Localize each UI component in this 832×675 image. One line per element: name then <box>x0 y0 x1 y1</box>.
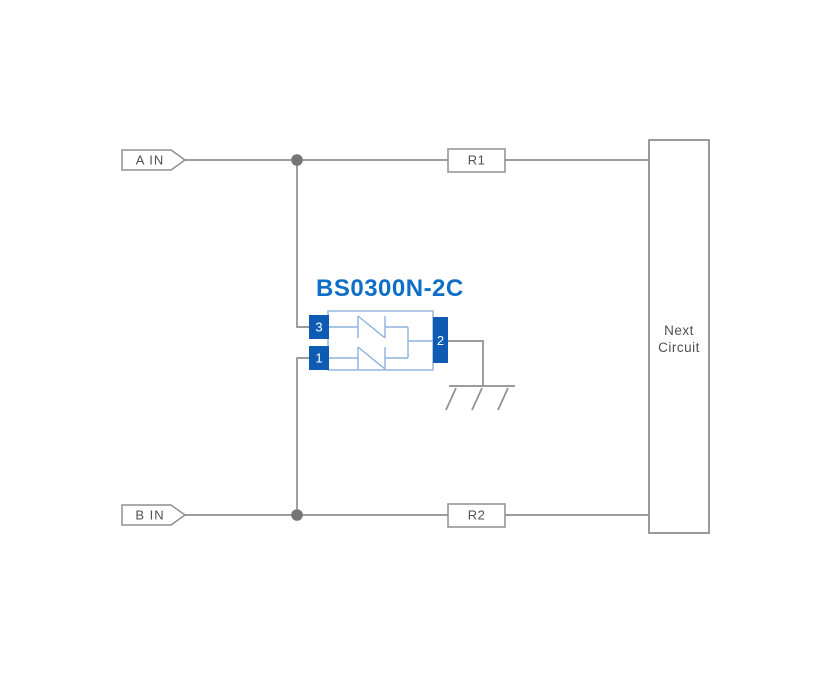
resistor-r1-label: R1 <box>468 153 486 168</box>
input-flag-a-label: A IN <box>136 153 165 168</box>
esd-protection-component: BS0300N-2C <box>309 275 464 370</box>
resistor-r2: R2 <box>448 504 505 527</box>
junction-dot-a <box>291 154 303 166</box>
component-title: BS0300N-2C <box>316 275 464 302</box>
earth-ground-icon <box>446 386 515 410</box>
circuit-diagram-canvas: A IN B IN R1 R2 Next Circuit BS0300N-2C <box>0 0 832 675</box>
pin-1-number: 1 <box>315 351 322 366</box>
input-flag-b-label: B IN <box>135 508 164 523</box>
next-circuit-label-line2: Circuit <box>658 340 700 355</box>
pin-3: 3 <box>309 315 329 339</box>
junction-dot-b <box>291 509 303 521</box>
wire-a-node-to-pin3 <box>297 160 309 327</box>
next-circuit-label-line1: Next <box>664 323 694 338</box>
application-circuit-diagram: A IN B IN R1 R2 Next Circuit BS0300N-2C <box>0 0 832 675</box>
next-circuit-block: Next Circuit <box>649 140 709 533</box>
ground-hatch-2 <box>472 388 482 410</box>
pin-1: 1 <box>309 346 329 370</box>
resistor-r1: R1 <box>448 149 505 172</box>
ground-hatch-1 <box>446 388 456 410</box>
ground-hatch-3 <box>498 388 508 410</box>
input-flag-a: A IN <box>122 150 185 170</box>
input-flag-b: B IN <box>122 505 185 525</box>
wire-pin1-to-b-node <box>297 358 309 515</box>
pin-3-number: 3 <box>315 320 322 335</box>
resistor-r2-label: R2 <box>468 508 486 523</box>
pin-2: 2 <box>433 317 448 363</box>
wire-pin2-to-ground <box>448 341 483 386</box>
pin-2-number: 2 <box>437 333 444 348</box>
